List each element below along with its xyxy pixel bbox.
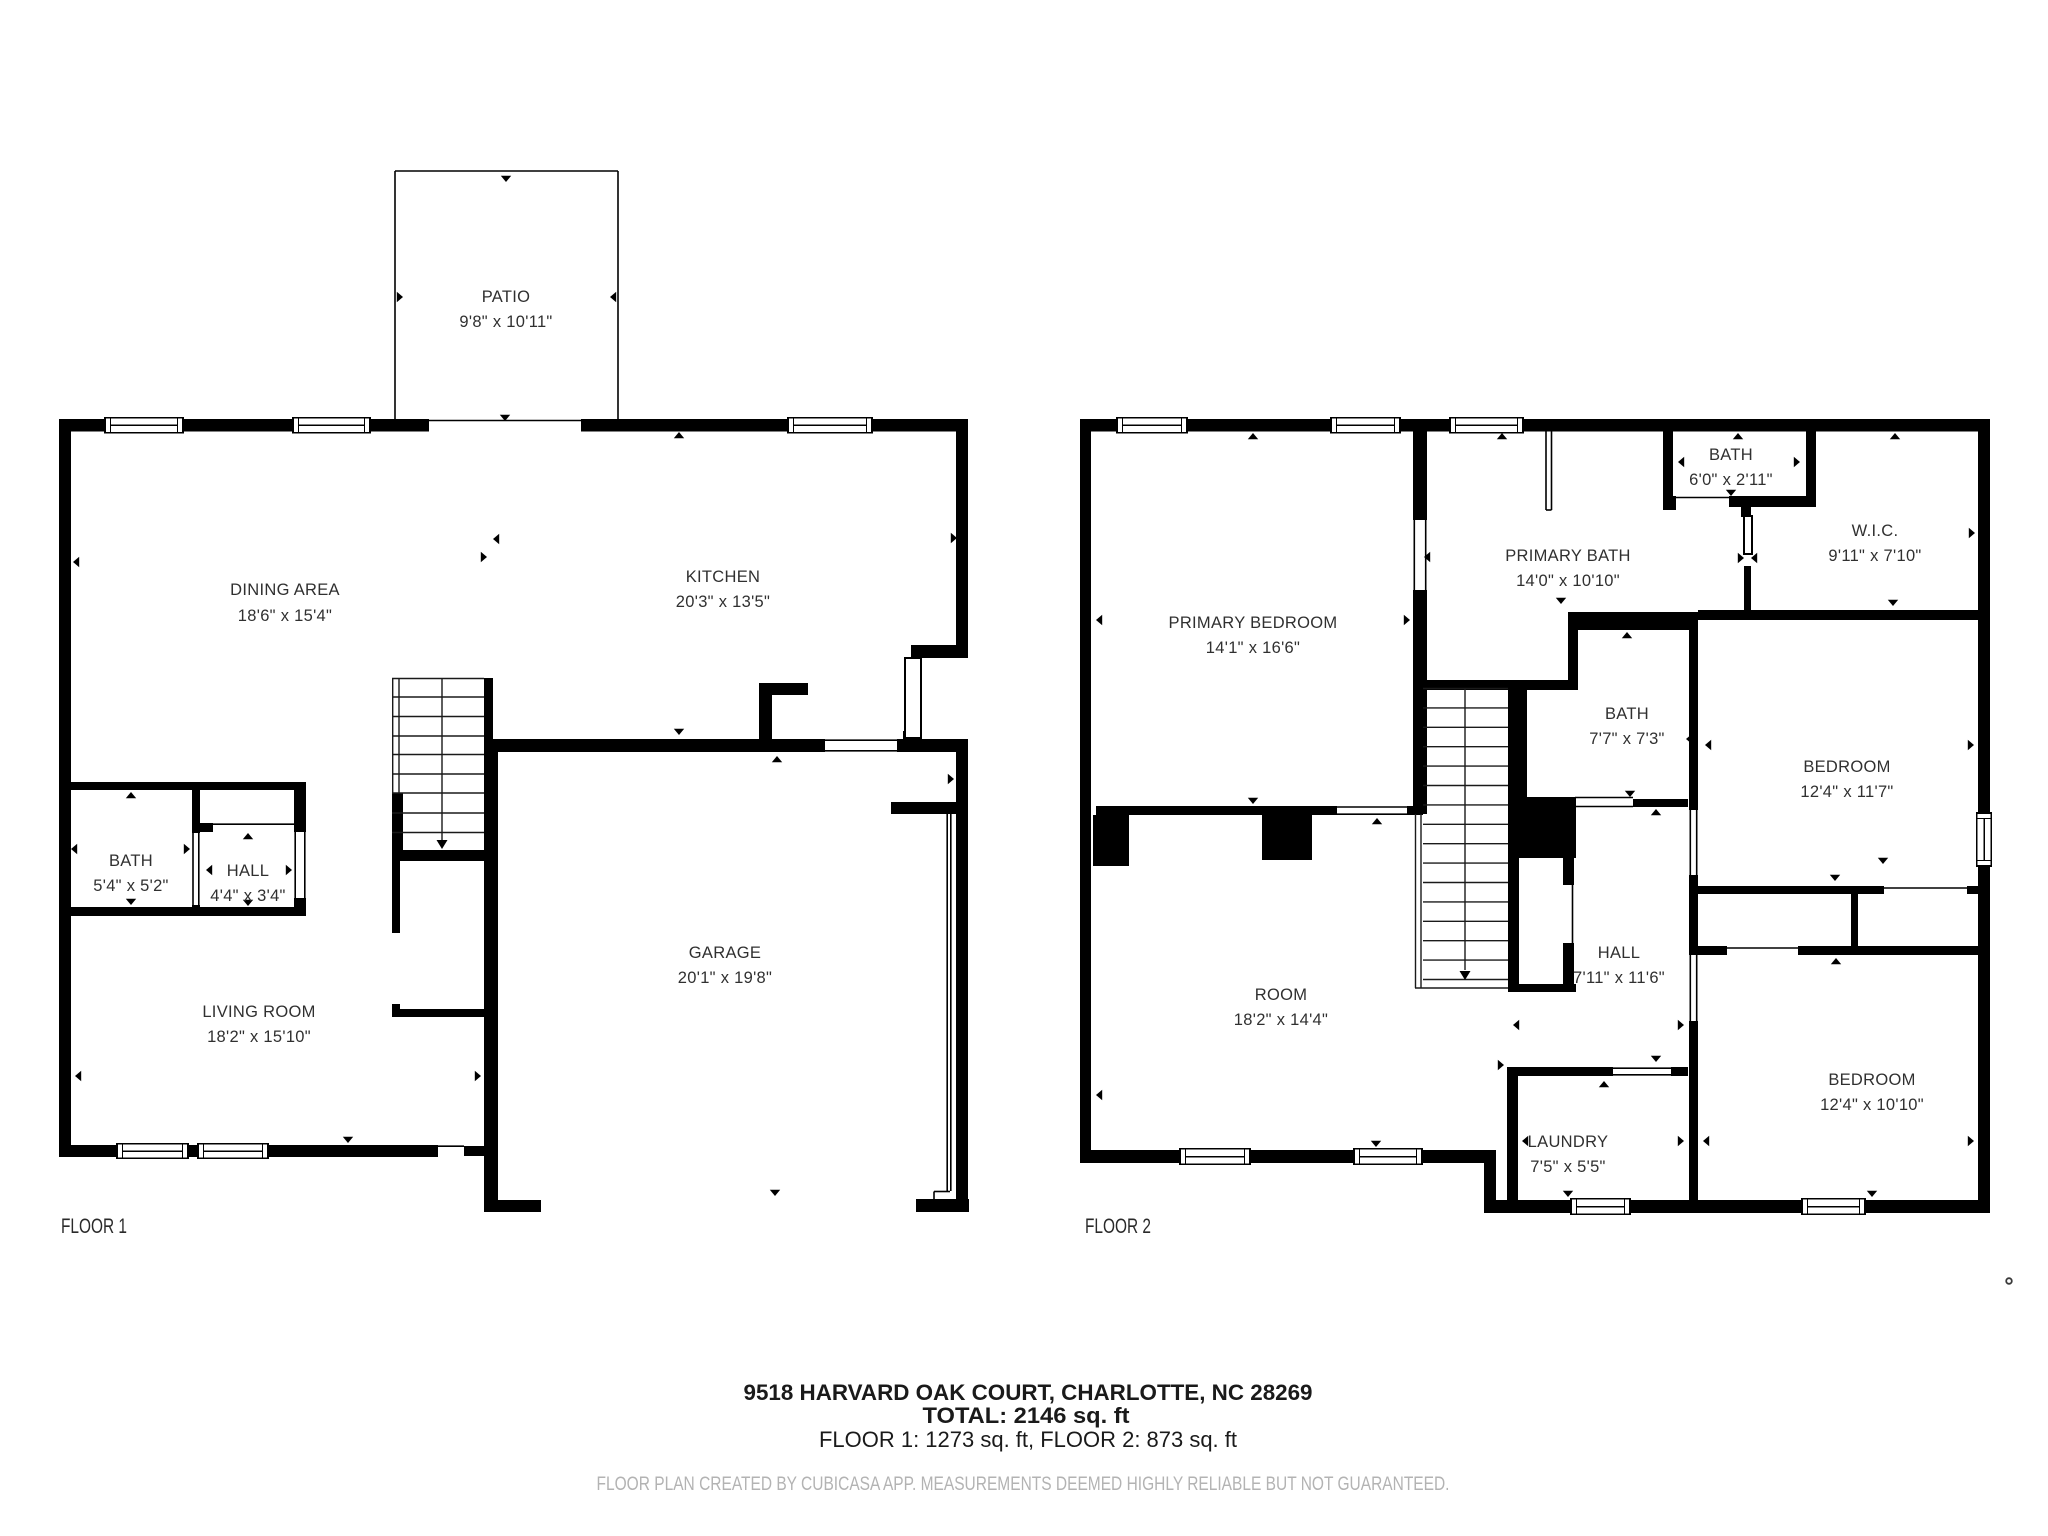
svg-text:HALL: HALL (227, 862, 269, 880)
svg-text:FLOOR 1: 1273 sq. ft, FLOOR 2:: FLOOR 1: 1273 sq. ft, FLOOR 2: 873 sq. f… (819, 1427, 1237, 1452)
svg-text:PATIO: PATIO (482, 288, 531, 306)
svg-text:W.I.C.: W.I.C. (1852, 522, 1899, 540)
svg-text:BEDROOM: BEDROOM (1828, 1071, 1915, 1089)
svg-text:7'7" x 7'3": 7'7" x 7'3" (1589, 730, 1664, 748)
svg-text:FLOOR 2: FLOOR 2 (1085, 1215, 1151, 1238)
svg-text:14'1" x 16'6": 14'1" x 16'6" (1206, 639, 1300, 657)
svg-text:12'4" x 10'10": 12'4" x 10'10" (1820, 1096, 1924, 1114)
svg-text:PRIMARY BEDROOM: PRIMARY BEDROOM (1169, 614, 1338, 632)
svg-text:18'2" x 14'4": 18'2" x 14'4" (1234, 1011, 1328, 1029)
svg-text:5'4" x 5'2": 5'4" x 5'2" (93, 877, 168, 895)
svg-text:6'0" x 2'11": 6'0" x 2'11" (1689, 471, 1773, 489)
svg-text:7'11" x 11'6": 7'11" x 11'6" (1573, 969, 1665, 987)
svg-text:9'11" x 7'10": 9'11" x 7'10" (1828, 547, 1921, 565)
svg-text:7'5" x 5'5": 7'5" x 5'5" (1530, 1158, 1605, 1176)
svg-text:FLOOR PLAN CREATED BY CUBICASA: FLOOR PLAN CREATED BY CUBICASA APP. MEAS… (597, 1473, 1450, 1495)
svg-text:LIVING ROOM: LIVING ROOM (202, 1003, 315, 1021)
svg-text:20'3" x 13'5": 20'3" x 13'5" (676, 593, 770, 611)
svg-text:BEDROOM: BEDROOM (1803, 758, 1890, 776)
svg-text:PRIMARY BATH: PRIMARY BATH (1505, 547, 1631, 565)
svg-text:DINING AREA: DINING AREA (230, 581, 340, 599)
svg-text:4'4" x 3'4": 4'4" x 3'4" (210, 887, 285, 905)
svg-text:HALL: HALL (1598, 944, 1640, 962)
svg-text:BATH: BATH (109, 852, 153, 870)
svg-text:GARAGE: GARAGE (689, 944, 761, 962)
svg-text:BATH: BATH (1605, 705, 1649, 723)
svg-text:9518 HARVARD OAK COURT, CHARLO: 9518 HARVARD OAK COURT, CHARLOTTE, NC 28… (744, 1380, 1313, 1405)
svg-text:9'8" x 10'11": 9'8" x 10'11" (459, 313, 552, 331)
svg-text:20'1" x 19'8": 20'1" x 19'8" (678, 969, 772, 987)
svg-text:KITCHEN: KITCHEN (686, 568, 761, 586)
svg-text:18'2" x 15'10": 18'2" x 15'10" (207, 1028, 311, 1046)
svg-text:TOTAL: 2146 sq. ft: TOTAL: 2146 sq. ft (923, 1403, 1131, 1428)
svg-text:12'4" x 11'7": 12'4" x 11'7" (1800, 783, 1893, 801)
svg-text:BATH: BATH (1709, 446, 1753, 464)
svg-text:FLOOR 1: FLOOR 1 (61, 1215, 127, 1238)
svg-text:14'0" x 10'10": 14'0" x 10'10" (1516, 572, 1620, 590)
svg-text:ROOM: ROOM (1255, 986, 1308, 1004)
svg-text:18'6" x 15'4": 18'6" x 15'4" (238, 607, 332, 625)
svg-text:LAUNDRY: LAUNDRY (1528, 1133, 1609, 1151)
